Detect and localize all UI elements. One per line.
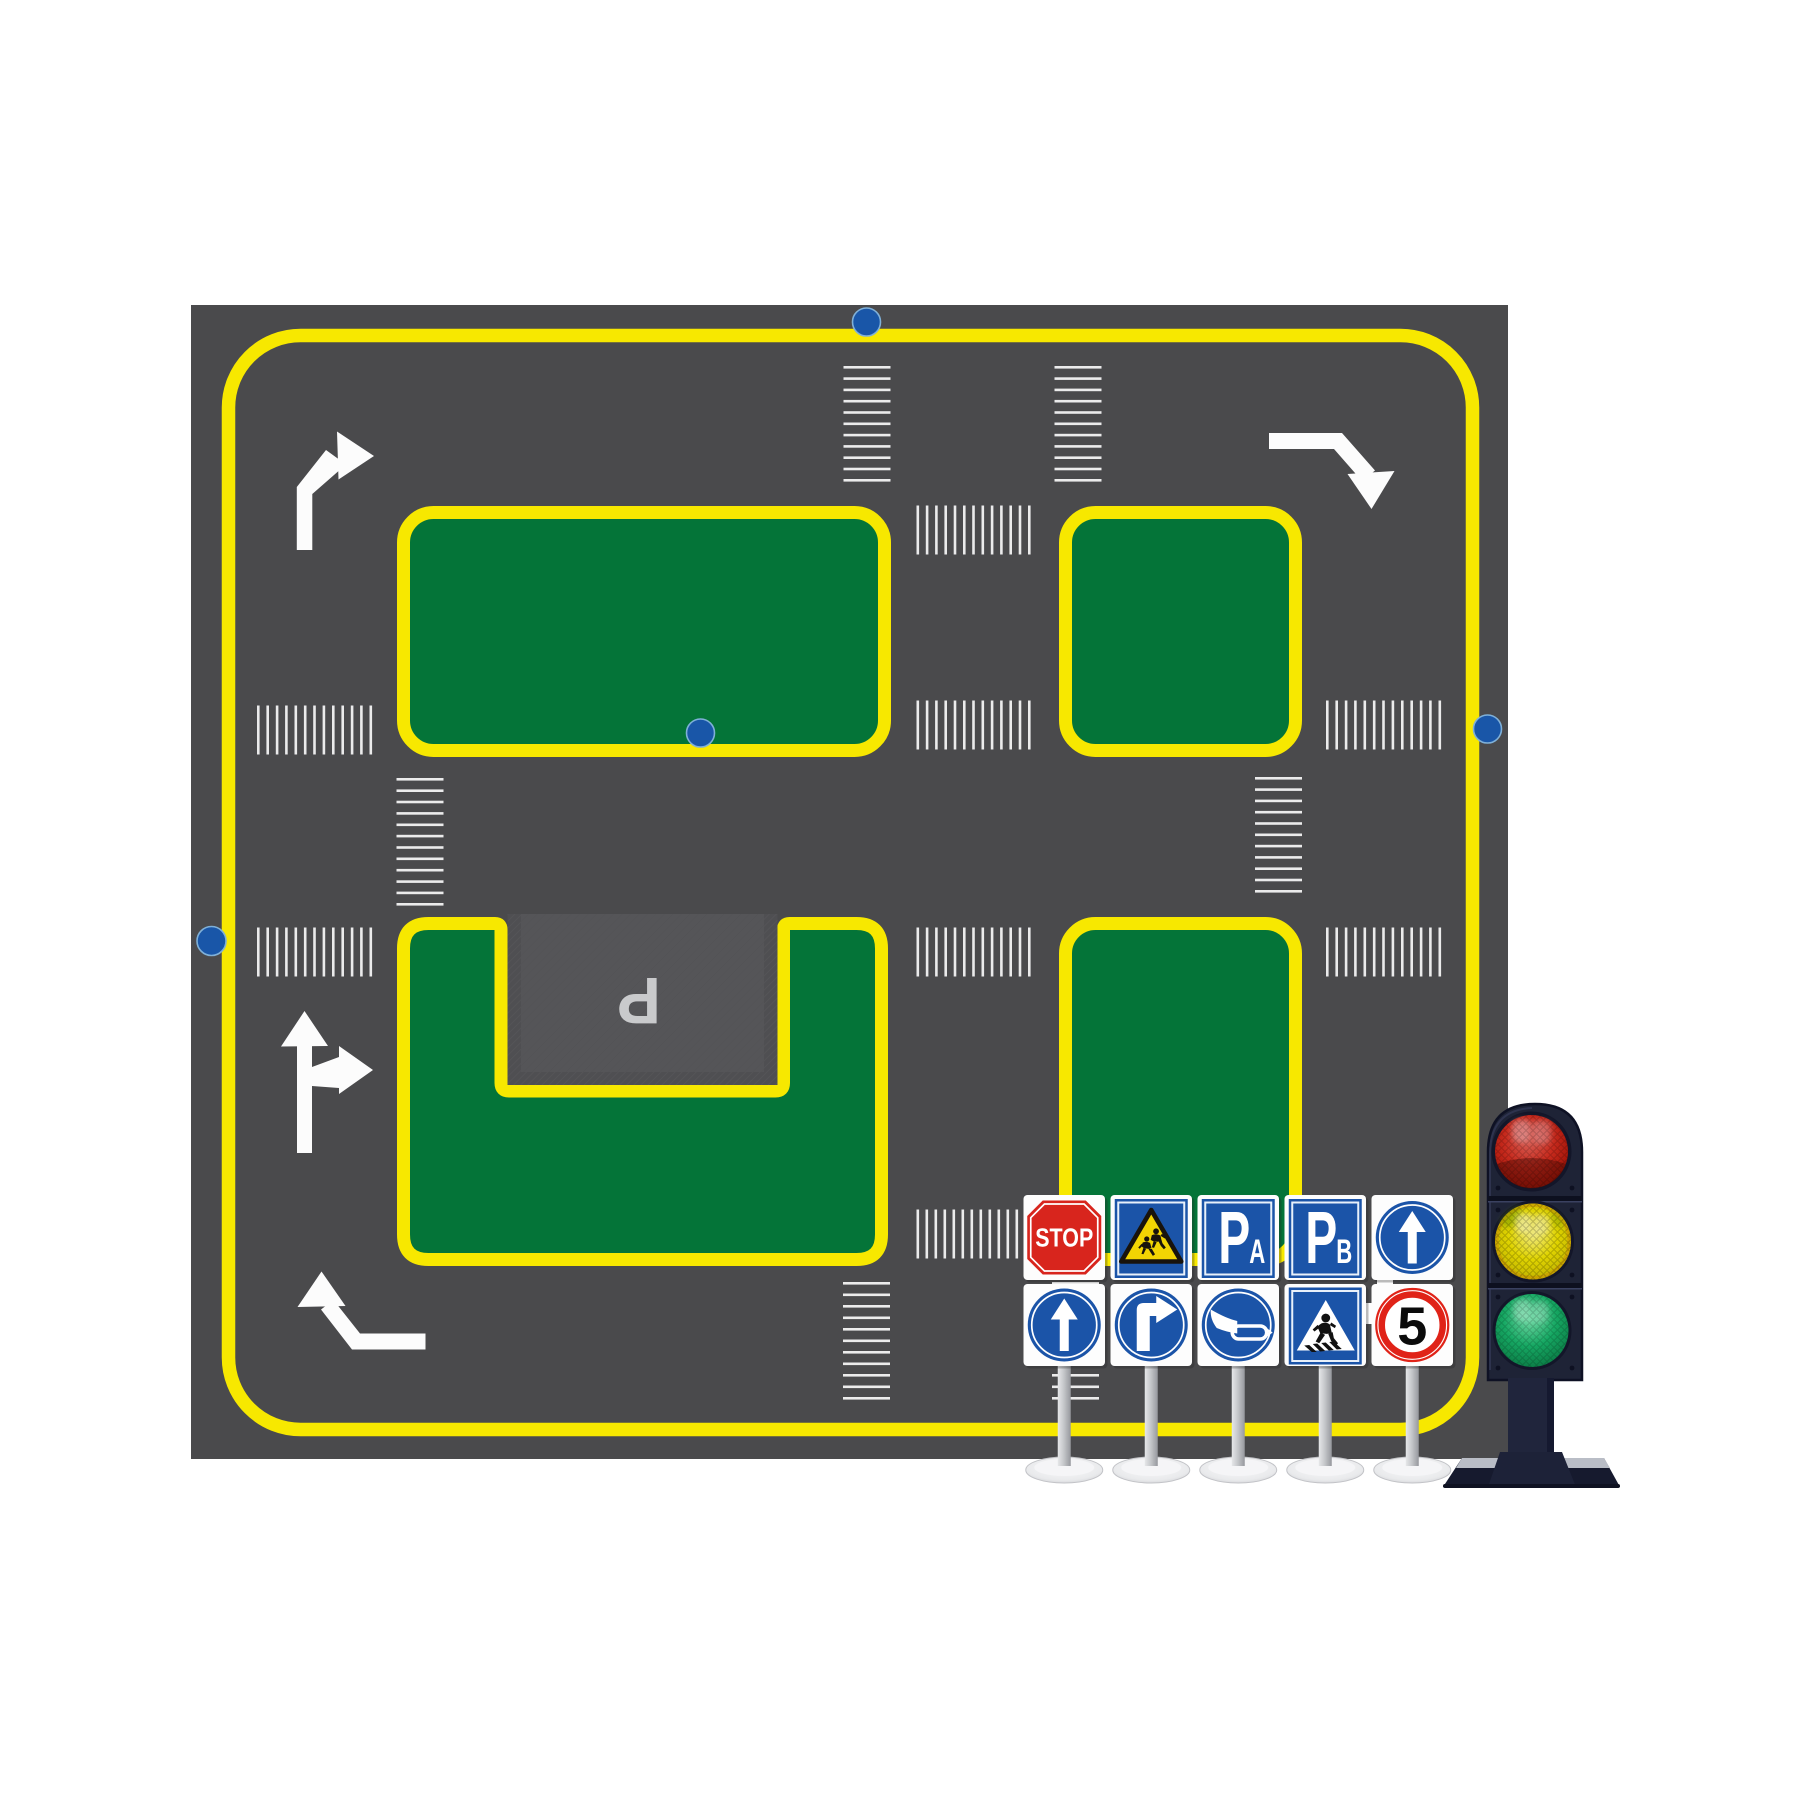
svg-text:P: P	[1218, 1196, 1250, 1279]
svg-text:P: P	[617, 964, 661, 1038]
svg-text:5: 5	[1397, 1297, 1427, 1357]
svg-text:B: B	[1336, 1233, 1352, 1271]
svg-text:STOP: STOP	[1035, 1223, 1093, 1253]
svg-text:P: P	[1305, 1196, 1337, 1279]
svg-text:A: A	[1249, 1233, 1265, 1271]
